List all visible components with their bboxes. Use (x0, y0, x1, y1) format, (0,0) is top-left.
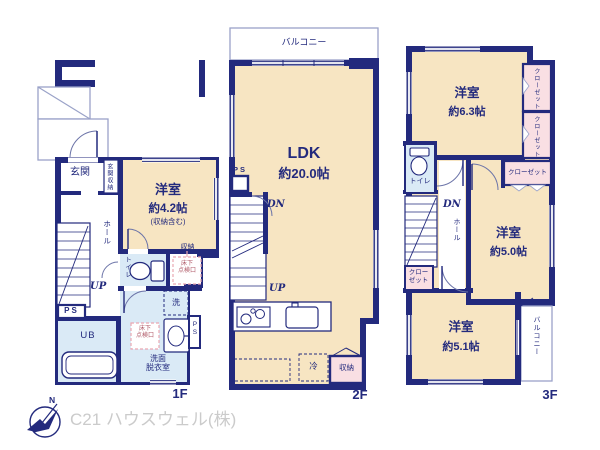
genkan-label: 玄関 (57, 167, 103, 179)
ub-label: UB (68, 331, 108, 342)
storage-2f-label: 収納 (330, 364, 363, 373)
floorplan-drawing (0, 0, 600, 450)
closet-v2-label: クローゼット (532, 116, 539, 158)
toilet-3f-label: トイレ (405, 178, 435, 186)
compass-needle (27, 409, 58, 432)
washer-label: 洗 (164, 298, 188, 307)
ldk-name-label: LDK (232, 145, 376, 163)
floor-2f-label: 2F (346, 388, 374, 403)
genkan-storage-label: 玄関収納 (105, 163, 112, 191)
compass-north-label: N (49, 396, 55, 406)
floor-hatch-1-label: 床下点検口 (173, 261, 201, 275)
floor-2f-plan (230, 28, 380, 387)
up-2f-label: UP (269, 283, 285, 295)
kitchen-counter (233, 302, 331, 331)
hall-3f-label: ホール (452, 218, 460, 242)
closet-h-label: クローゼット (504, 169, 551, 176)
stairs-3f (405, 196, 437, 267)
toilet-icon-3f (410, 148, 429, 175)
ps-2f-label: PS (233, 166, 247, 175)
balcony-3f-label: バルコニー (532, 316, 540, 356)
room-4_2-name: 洋室 (120, 183, 216, 198)
floor-3f-label: 3F (536, 388, 564, 403)
ps-right-label: PS (191, 321, 198, 337)
room-4_2-size: 約4.2帖 (120, 203, 216, 216)
room-6_3-name: 洋室 (409, 86, 525, 100)
bathtub-icon (62, 352, 117, 378)
room-5_0-size: 約5.0帖 (466, 246, 551, 259)
ps-1f-label: PS (58, 306, 85, 315)
floor-1f-label: 1F (166, 387, 194, 402)
up-1f-label: UP (90, 281, 106, 293)
fridge-label: 冷 (299, 362, 328, 372)
room-4_2-note: (収納含む) (120, 218, 216, 227)
washroom-label: 洗面脱衣室 (140, 354, 176, 372)
stairs-1f (57, 223, 90, 307)
compass-icon (27, 404, 60, 437)
floorplan-canvas: 玄関 玄関収納 洋室 約4.2帖 (収納含む) ホール UP PS トイレ 収納… (0, 0, 600, 450)
storage-1f-label: 収納 (172, 244, 203, 252)
room-5_1-name: 洋室 (407, 320, 515, 334)
kitchen-sink-icon (286, 303, 318, 328)
room-5_1-size: 約5.1帖 (407, 341, 515, 354)
room-6_3-size: 約6.3帖 (409, 106, 525, 119)
closet-small-label: クローゼット (408, 269, 429, 285)
stairs-2f (230, 192, 272, 300)
dn-2f-label: DN (267, 199, 285, 211)
closet-v1-label: クローゼット (532, 68, 539, 110)
ldk-size-label: 約20.0帖 (232, 167, 376, 182)
corner-wall-2f (349, 58, 379, 69)
approach-slope (38, 87, 108, 160)
room-5_0-name: 洋室 (466, 226, 551, 240)
company-credit: C21 ハウスウェル(株) (70, 410, 236, 430)
toilet-1f-label: トイレ (123, 256, 130, 279)
dn-3f-label: DN (443, 199, 461, 211)
washbasin-icon (164, 319, 189, 352)
balcony-2f-label: バルコニー (230, 37, 378, 47)
kitchen-stove-icon (237, 307, 270, 327)
floor-hatch-2-label: 床下点検口 (131, 326, 159, 340)
hall-1f-label: ホール (102, 220, 111, 246)
